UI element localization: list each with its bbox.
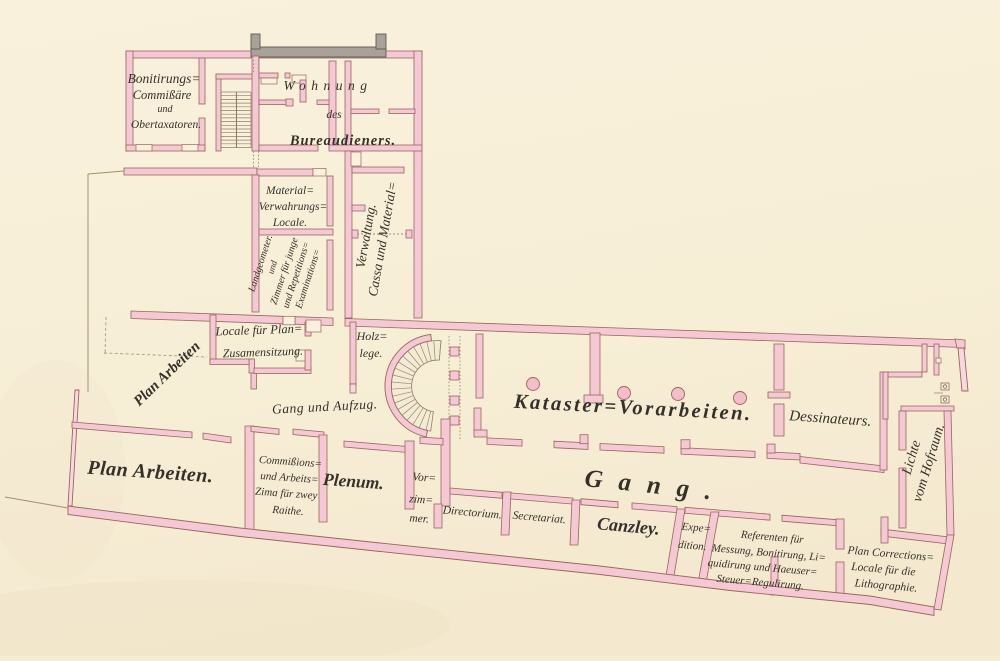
svg-text:des: des — [326, 109, 342, 121]
svg-text:Raithe.: Raithe. — [271, 504, 304, 518]
svg-text:Verwahrungs=: Verwahrungs= — [259, 201, 327, 213]
svg-text:Bonitirungs=: Bonitirungs= — [128, 71, 201, 86]
svg-text:mer.: mer. — [409, 512, 429, 525]
svg-text:Obertaxatoren.: Obertaxatoren. — [131, 119, 201, 131]
svg-text:Bureaudieners.: Bureaudieners. — [289, 133, 396, 149]
svg-text:Material=: Material= — [265, 185, 314, 197]
svg-text:Commißäre: Commißäre — [133, 88, 192, 102]
svg-text:lege.: lege. — [360, 346, 383, 360]
svg-text:dition.: dition. — [678, 539, 707, 553]
svg-text:Locale.: Locale. — [272, 217, 307, 229]
svg-text:Holz=: Holz= — [356, 329, 388, 343]
svg-text:zim=: zim= — [408, 493, 434, 507]
svg-text:Vor=: Vor= — [412, 471, 437, 485]
svg-text:und: und — [158, 104, 174, 115]
svg-text:Zusamensitzung.: Zusamensitzung. — [222, 344, 303, 361]
svg-text:Wohnung: Wohnung — [283, 78, 372, 93]
